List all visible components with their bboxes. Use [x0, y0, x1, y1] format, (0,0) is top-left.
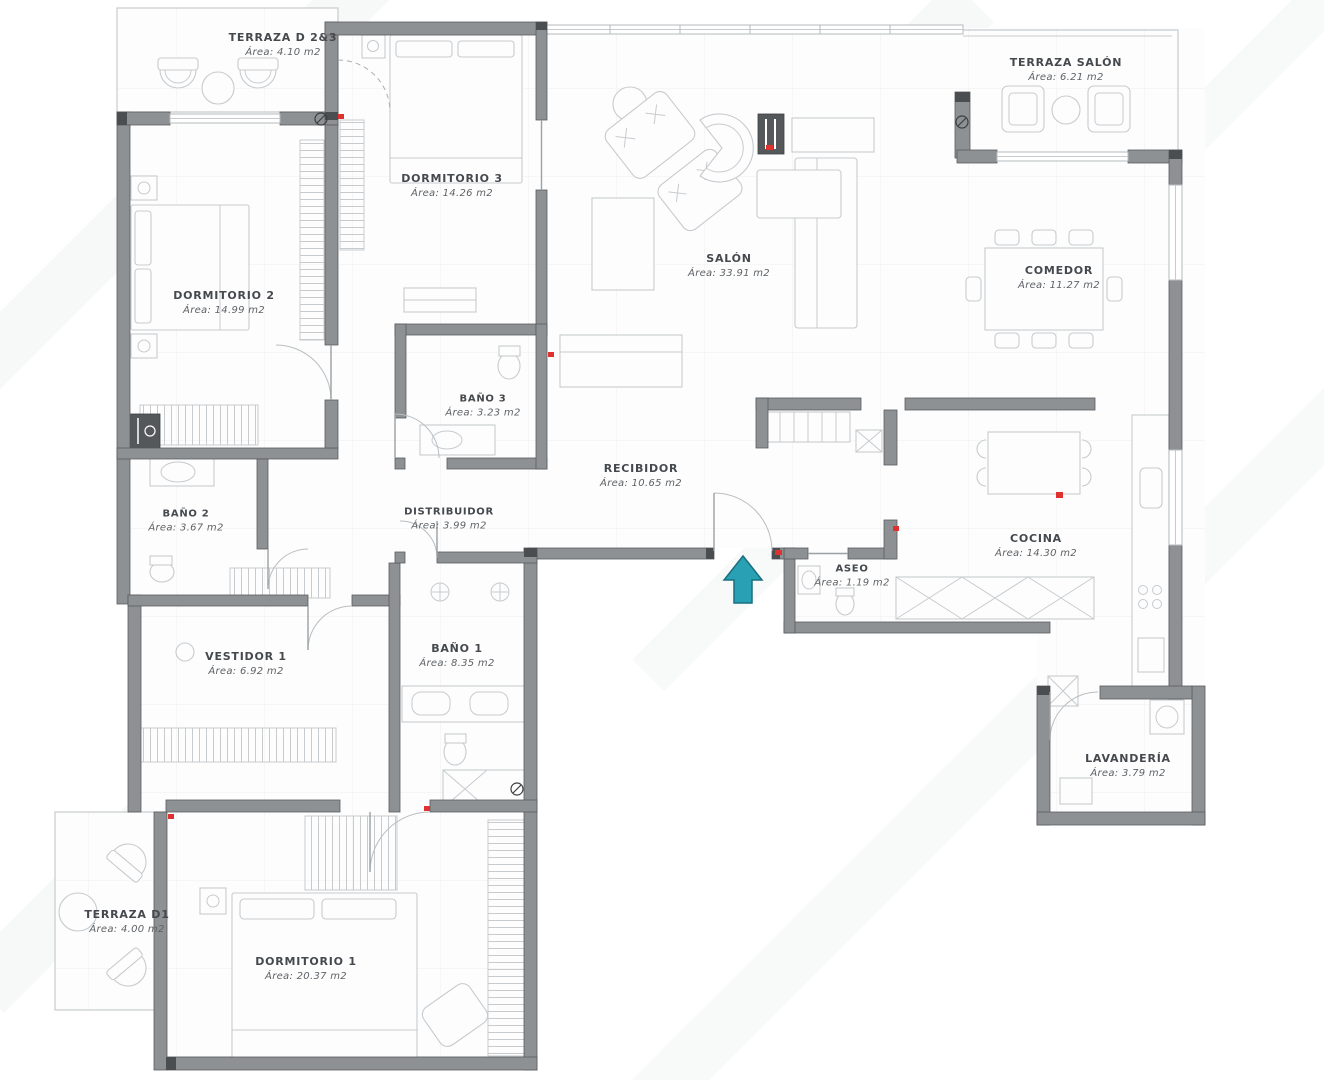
- red-marker: [338, 114, 344, 119]
- wardrobe-dormitorio-1: [305, 816, 397, 890]
- sideboard: [792, 118, 874, 152]
- stool: [176, 643, 194, 661]
- vestidor-closet: [136, 728, 336, 762]
- red-marker: [424, 806, 430, 811]
- red-marker: [168, 814, 174, 819]
- dining-set: [966, 230, 1122, 348]
- wardrobe-dormitorio-3: [340, 120, 364, 250]
- terrace-table: [59, 893, 97, 931]
- red-marker: [893, 526, 899, 531]
- bed-dormitorio-1: [200, 888, 417, 1058]
- terrace-table: [202, 72, 234, 104]
- hall-closet: [230, 568, 330, 598]
- oven: [1138, 638, 1164, 672]
- kitchen-table: [988, 432, 1080, 494]
- kitchen-cabinet-row: [896, 577, 1094, 619]
- tv-cabinet: [560, 335, 682, 387]
- coffee-table: [592, 198, 654, 290]
- red-marker: [766, 145, 773, 150]
- floorplan-drawing: [0, 0, 1324, 1080]
- kitchen-sink: [1140, 468, 1162, 508]
- terrace-table: [1052, 96, 1080, 124]
- red-marker: [1056, 492, 1063, 498]
- closet-column: [488, 820, 526, 1056]
- wardrobe-dormitorio-2: [300, 140, 324, 340]
- red-marker: [775, 550, 782, 555]
- floorplan: TERRAZA D 2&3Área: 4.10 m2 DORMITORIO 3Á…: [0, 0, 1324, 1080]
- red-marker: [548, 352, 554, 357]
